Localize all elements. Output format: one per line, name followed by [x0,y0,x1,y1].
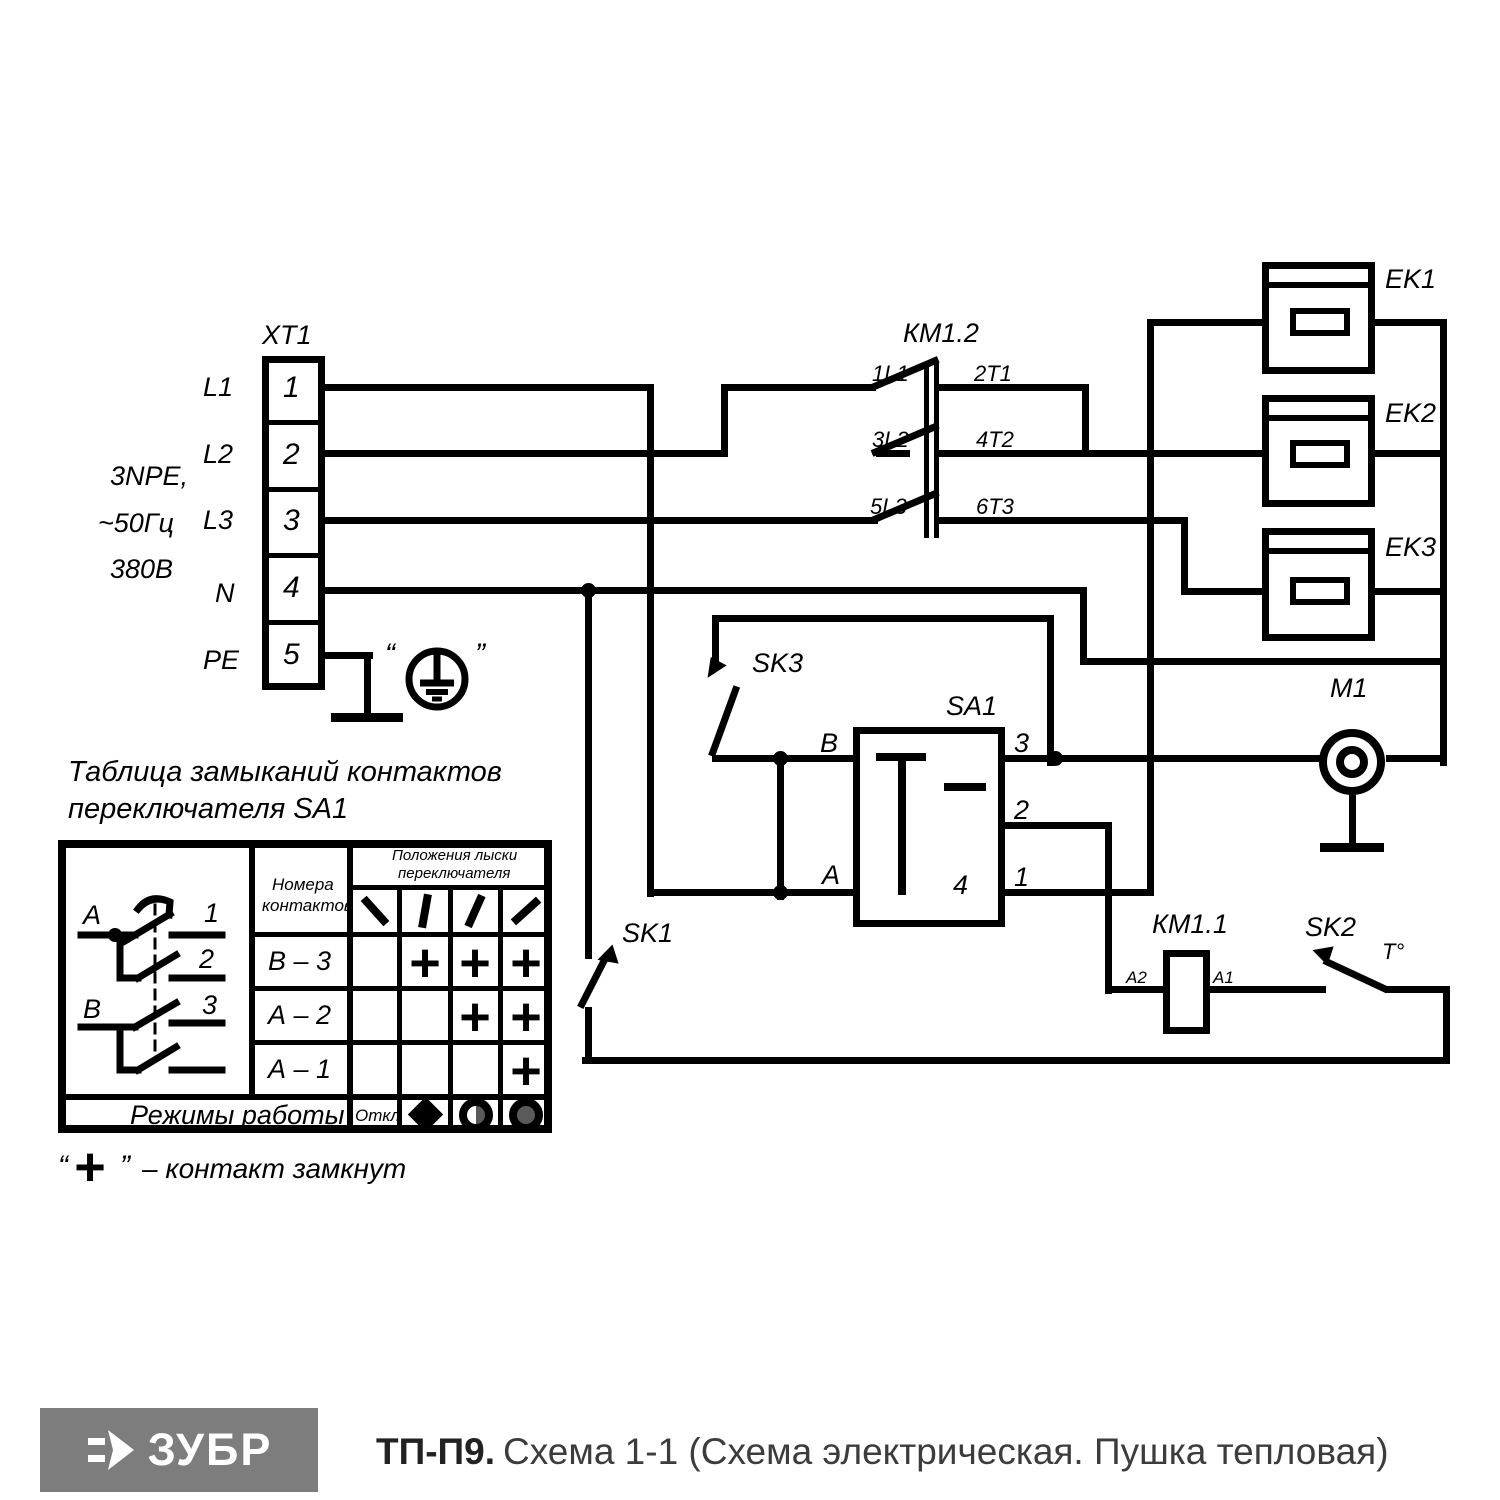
wire [1386,755,1447,762]
xt1-terminal-number: 5 [283,640,300,670]
wire [1005,822,1112,829]
wire [1082,384,1089,457]
wire [364,652,371,720]
wire [1181,517,1188,595]
xt1-cell-divider [266,620,321,625]
wire [777,755,784,900]
wire [1080,658,1447,665]
ground-quote-right: ” [475,640,485,670]
wire [325,517,878,524]
positions-header: переключателя [398,866,510,881]
junction-dot [1048,751,1063,766]
closure-mark: + [449,936,501,990]
wire [647,889,857,896]
wire [325,450,728,457]
sa1-terminal-3: 3 [1014,730,1029,757]
heater-label: EK3 [1385,534,1436,561]
contactor-link-bar [934,362,939,538]
resistor-symbol [1290,440,1350,468]
zubr-logo: ЗУБР [40,1408,318,1492]
heater-inner-line [1267,282,1370,288]
wire [1210,986,1326,993]
sk2-temp-label: Т° [1382,941,1404,963]
diagram-label-2: 2 [199,946,214,973]
wire [1005,889,1154,896]
wire [582,1057,1450,1064]
diagram-label-b: В [83,996,101,1023]
sa1-terminal-4: 4 [953,872,968,899]
junction-dot [773,751,788,766]
wire [325,587,1087,594]
sa1-key-symbol-stem [898,753,906,895]
resistor-symbol [1290,308,1350,336]
wire [1147,319,1154,896]
sk3-blade [708,685,740,757]
line-label-pe: PE [203,647,239,674]
zubr-logo-text: ЗУБР [148,1424,273,1476]
numbers-header: Номера [272,876,334,893]
xt1-label: XT1 [262,322,312,349]
diagram-label-1: 1 [204,900,219,927]
half-heat-icon [459,1098,493,1132]
motor-ground-bar [1320,843,1384,852]
wire [1440,319,1447,766]
modes-label: Режимы работы [130,1102,344,1129]
table-title-line2: переключателя SA1 [68,795,348,824]
heater-inner-line [1267,415,1370,421]
resistor-symbol [1290,577,1350,605]
heater-label: EK1 [1385,266,1436,293]
km11-a2-label: А2 [1126,969,1147,986]
wire [325,384,654,391]
legend-plus: + [60,1140,120,1194]
km12-label: КМ1.2 [903,320,979,347]
sk1-label: SK1 [622,920,673,947]
sa1-terminal-a: А [822,862,840,889]
heater-label: EK2 [1385,400,1436,427]
sk2-blade [1323,957,1389,993]
wire [938,384,1089,391]
xt1-cell-divider [266,487,321,492]
ground-quote-left: “ [385,640,395,670]
line-label-l3: L3 [203,507,233,534]
wire [585,1007,592,1064]
xt1-terminal-number: 1 [283,373,300,403]
km11-label: КМ1.1 [1152,911,1228,938]
wire [721,384,728,457]
km12-contact-label: 2T1 [974,363,1012,385]
numbers-header: контактов [262,897,353,914]
motor-label: M1 [1330,675,1368,702]
zubr-logo-icon [86,1428,138,1472]
km12-contact-label: 6T3 [976,496,1014,518]
table-row-name: В – 3 [268,948,331,975]
supply-label: ~50Гц [98,510,174,537]
contactor-link-bar [924,362,929,538]
table-row-name: А – 1 [268,1056,331,1083]
sk3-label: SK3 [752,650,803,677]
sa1-terminal-2: 2 [1014,797,1029,824]
sk3-contact-arrow [701,657,726,683]
supply-label: 3NPE, [110,463,188,490]
motor-ground-wire [1349,795,1356,847]
closure-mark: + [500,990,552,1044]
table-grid-line [249,840,255,1097]
closure-mark: + [500,936,552,990]
wire [1386,986,1450,993]
off-label: Откл [355,1107,400,1124]
diagram-label-3: 3 [202,992,217,1019]
heater-inner-line [1267,548,1370,554]
wire [585,591,592,959]
wire [1080,587,1087,665]
sa1-label: SA1 [946,693,997,720]
wire [1105,822,1112,994]
motor-symbol-inner [1336,746,1368,778]
xt1-cell-divider [266,420,321,425]
xt1-cell-divider [266,553,321,558]
xt1-terminal-number: 3 [283,506,300,536]
wire [712,615,1054,622]
line-label-l1: L1 [203,374,233,401]
xt1-terminal-number: 4 [283,573,300,603]
wire [1105,986,1163,993]
legend-quote-close: ” [120,1152,130,1182]
footer-model: ТП-П9. [376,1431,495,1473]
junction-dot [773,885,788,900]
wire [724,384,876,391]
closure-mark: + [449,990,501,1044]
wire [1443,986,1450,1064]
wire [1047,615,1054,766]
sa1-key-symbol-dash [944,783,986,791]
line-label-n: N [215,580,235,607]
km11-coil [1163,950,1210,1034]
footer-description: Схема 1-1 (Схема электрическая. Пушка те… [503,1431,1389,1473]
legend-text: – контакт замкнут [142,1155,406,1183]
xt1-terminal-number: 2 [283,440,300,470]
positions-header: Положения лыски [392,848,517,863]
full-heat-icon [509,1098,543,1132]
km12-contact-label: 4T2 [976,429,1014,451]
table-grid-line [350,885,552,890]
sk1-blade [577,952,610,1009]
supply-label: 380В [110,556,173,583]
table-row-name: А – 2 [268,1002,331,1029]
schematic-canvas: XT1 1 2 3 4 5 L1 L2 L3 N PE 3NPE, ~50Гц … [0,0,1500,1500]
diagram-label-a: А [83,902,101,929]
closure-mark: + [399,936,451,990]
wire [647,384,654,897]
sa1-terminal-b: В [820,730,838,757]
table-title-line1: Таблица замыканий контактов [68,758,502,787]
km11-a1-label: А1 [1213,969,1234,986]
line-label-l2: L2 [203,441,233,468]
pe-ground-bar [331,713,403,722]
closure-mark: + [500,1044,552,1098]
sk2-label: SK2 [1305,914,1356,941]
sa1-terminal-1: 1 [1014,864,1029,891]
protective-earth-icon [402,644,472,714]
